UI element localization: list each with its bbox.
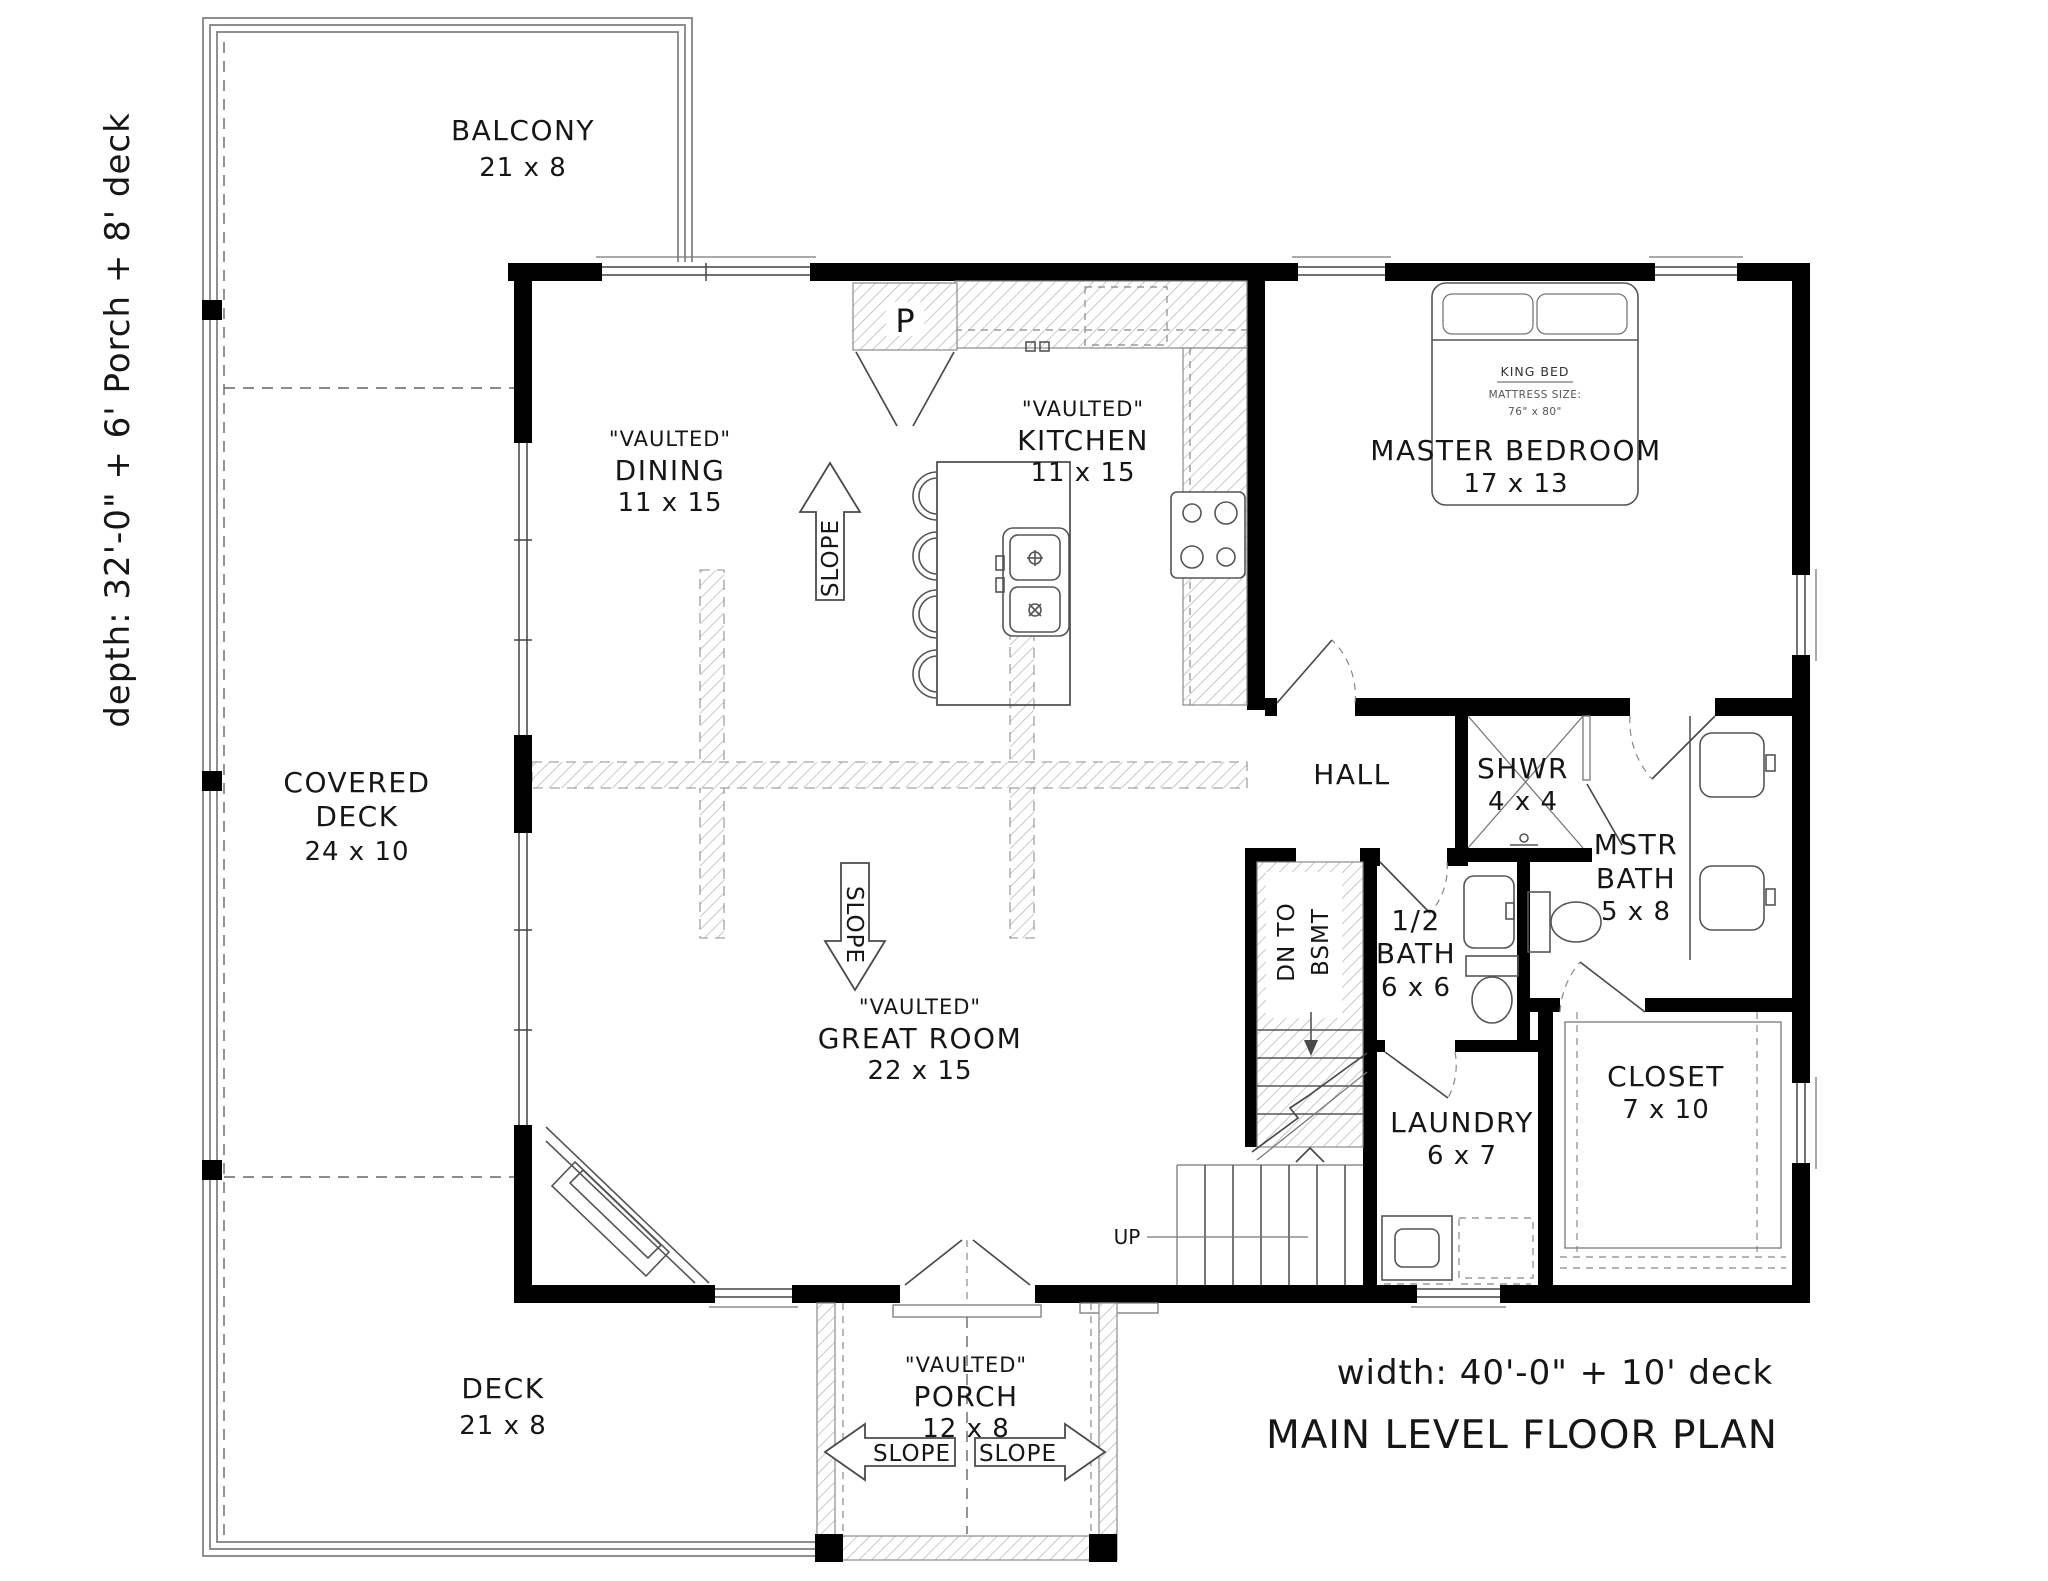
svg-text:MSTR: MSTR	[1594, 828, 1679, 861]
porch-step	[1080, 1303, 1158, 1313]
deck-post	[202, 1160, 222, 1180]
depth-note: depth: 32'-0" + 6' Porch + 8' deck	[98, 112, 138, 728]
fireplace	[546, 1127, 709, 1283]
pantry-label: P	[895, 302, 914, 340]
washer	[1382, 1216, 1452, 1280]
svg-text:1/2: 1/2	[1391, 904, 1441, 937]
slope-label: SLOPE	[873, 1441, 951, 1467]
half-bath-sink	[1464, 876, 1514, 948]
balcony-label: BALCONY21 x 8	[451, 114, 595, 183]
svg-text:MATTRESS SIZE:: MATTRESS SIZE:	[1489, 389, 1582, 401]
svg-text:BALCONY: BALCONY	[451, 114, 595, 147]
half-bath-toilet	[1466, 956, 1518, 1023]
closet-label: CLOSET7 x 10	[1607, 1060, 1725, 1125]
dining-label: "VAULTED"DINING11 x 15	[609, 427, 731, 518]
svg-text:COVERED: COVERED	[283, 766, 430, 799]
svg-text:4 x 4: 4 x 4	[1488, 787, 1558, 817]
master-bedroom-east-window	[1797, 569, 1816, 661]
master-bath-label: MSTRBATH5 x 8	[1594, 828, 1679, 927]
svg-text:"VAULTED": "VAULTED"	[905, 1353, 1027, 1377]
kitchen-counter-north	[955, 281, 1247, 348]
range	[1171, 492, 1245, 578]
west-window-band-2	[514, 833, 532, 1125]
slope-label: SLOPE	[818, 519, 844, 597]
west-window-band-1	[514, 443, 532, 735]
svg-text:BSMT: BSMT	[1308, 908, 1334, 976]
svg-text:7 x 10: 7 x 10	[1622, 1095, 1710, 1125]
master-bedroom-door	[1277, 640, 1355, 703]
svg-text:KITCHEN: KITCHEN	[1017, 424, 1149, 457]
svg-text:CLOSET: CLOSET	[1607, 1060, 1725, 1093]
sink	[1700, 866, 1764, 930]
island-sink	[996, 528, 1069, 636]
closet-door	[1560, 962, 1645, 1012]
svg-text:BATH: BATH	[1376, 937, 1456, 970]
shower-label: SHWR4 x 4	[1477, 752, 1569, 817]
master-bath-door	[1630, 716, 1715, 779]
master-bedroom-north-window	[1292, 257, 1391, 275]
king-bed-label: KING BED MATTRESS SIZE: 76" x 80"	[1489, 364, 1582, 418]
stairs-up	[1147, 1148, 1363, 1285]
width-note: width: 40'-0" + 10' deck	[1337, 1353, 1774, 1393]
svg-text:"VAULTED": "VAULTED"	[859, 995, 981, 1019]
svg-text:"VAULTED": "VAULTED"	[609, 427, 731, 451]
kitchen-casework	[853, 281, 1247, 705]
master-bedroom-label: MASTER BEDROOM17 x 13	[1370, 434, 1661, 499]
laundry-label: LAUNDRY6 x 7	[1390, 1106, 1534, 1171]
porch-post	[1089, 1534, 1117, 1562]
kitchen-label: "VAULTED"KITCHEN11 x 15	[1017, 397, 1149, 488]
svg-text:GREAT ROOM: GREAT ROOM	[818, 1022, 1023, 1055]
floor-plan-drawing: SLOPE SLOPE SLOPE SLOPE BALCONY21 x 8 CO…	[0, 0, 2048, 1581]
svg-text:22 x 15: 22 x 15	[867, 1056, 972, 1086]
porch-french-doors	[893, 1240, 1041, 1317]
svg-text:24 x 10: 24 x 10	[304, 837, 409, 867]
svg-text:DECK: DECK	[461, 1372, 544, 1405]
dining-north-window	[596, 257, 816, 281]
svg-text:HALL: HALL	[1313, 758, 1390, 791]
hall-label: HALL	[1313, 758, 1390, 791]
svg-text:depth: 32'-0" + 6' Porch + 8': depth: 32'-0" + 6' Porch + 8' deck	[98, 112, 138, 728]
slope-arrow-dining: SLOPE	[800, 463, 860, 600]
svg-text:12 x 8: 12 x 8	[922, 1414, 1010, 1444]
svg-text:6 x 6: 6 x 6	[1381, 973, 1451, 1003]
stairs	[1147, 862, 1367, 1285]
svg-text:KING BED: KING BED	[1501, 364, 1570, 379]
svg-text:PORCH: PORCH	[913, 1380, 1018, 1413]
deck-post	[202, 300, 222, 320]
up-label: UP	[1114, 1225, 1141, 1249]
svg-text:SHWR: SHWR	[1477, 752, 1569, 785]
pillow	[1443, 294, 1533, 334]
master-bath-vanity	[1690, 716, 1775, 960]
sink	[1700, 733, 1764, 797]
slope-label: SLOPE	[841, 886, 867, 964]
slope-arrow-great-room: SLOPE	[825, 863, 885, 990]
laundry-appliances	[1382, 1216, 1533, 1284]
porch-post	[815, 1534, 843, 1562]
half-bath-label: 1/2BATH6 x 6	[1376, 904, 1456, 1003]
dryer	[1459, 1218, 1533, 1278]
covered-deck-label: COVEREDDECK24 x 10	[283, 766, 430, 867]
svg-text:MASTER BEDROOM: MASTER BEDROOM	[1370, 434, 1661, 467]
deck-post	[202, 771, 222, 791]
great-room-label: "VAULTED"GREAT ROOM22 x 15	[818, 995, 1023, 1086]
great-room-south-window	[709, 1289, 798, 1307]
svg-text:BATH: BATH	[1596, 862, 1676, 895]
svg-text:76" x 80": 76" x 80"	[1508, 406, 1562, 418]
svg-text:21 x 8: 21 x 8	[479, 153, 567, 183]
ceiling-beams	[532, 570, 1247, 938]
master-bedroom-north-window-2	[1649, 257, 1743, 275]
pillow	[1537, 294, 1627, 334]
svg-text:LAUNDRY: LAUNDRY	[1390, 1106, 1534, 1139]
laundry-south-window	[1411, 1289, 1506, 1307]
slope-label: SLOPE	[979, 1441, 1057, 1467]
svg-text:21 x 8: 21 x 8	[459, 1411, 547, 1441]
floor-plan-page: SLOPE SLOPE SLOPE SLOPE BALCONY21 x 8 CO…	[0, 0, 2048, 1581]
svg-text:6 x 7: 6 x 7	[1427, 1141, 1497, 1171]
svg-text:17 x 13: 17 x 13	[1463, 469, 1568, 499]
master-bath-toilet	[1528, 892, 1601, 952]
svg-text:DN TO: DN TO	[1274, 902, 1300, 981]
plan-title: MAIN LEVEL FLOOR PLAN	[1266, 1413, 1778, 1458]
island-stools	[913, 472, 937, 698]
svg-text:11 x 15: 11 x 15	[1030, 458, 1135, 488]
svg-text:5 x 8: 5 x 8	[1601, 897, 1671, 927]
closet-shelving	[1560, 1012, 1786, 1268]
closet-east-window	[1797, 1077, 1816, 1169]
svg-text:DECK: DECK	[315, 800, 398, 833]
svg-text:"VAULTED": "VAULTED"	[1022, 397, 1144, 421]
porch-label: "VAULTED"PORCH12 x 8	[905, 1353, 1027, 1444]
laundry-door	[1385, 1052, 1456, 1098]
svg-text:11 x 15: 11 x 15	[617, 488, 722, 518]
kitchen-island	[913, 462, 1070, 705]
deck-label: DECK21 x 8	[459, 1372, 547, 1441]
svg-text:DINING: DINING	[615, 454, 726, 487]
